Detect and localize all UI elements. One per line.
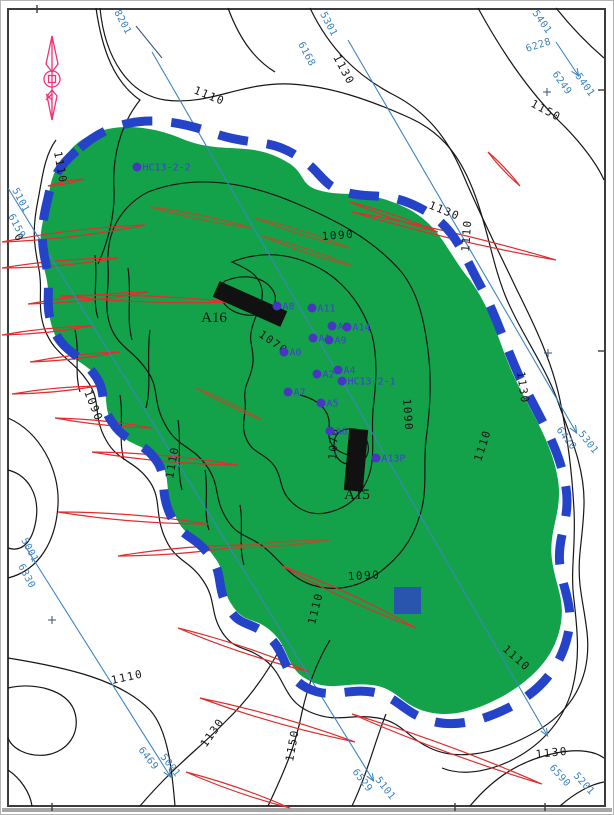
well-dot-A14 <box>343 323 352 332</box>
contour-label-1090: 1090 <box>347 568 380 583</box>
contour-label-1090: 1090 <box>400 398 415 431</box>
well-dot-A1 <box>309 334 318 343</box>
well-dot-HC13-2-2 <box>133 163 142 172</box>
facility-square <box>394 587 421 614</box>
facility <box>394 587 421 614</box>
well-dot-A7 <box>284 388 293 397</box>
well-label-A2: A2 <box>323 370 335 381</box>
well-label-A6: A6 <box>336 427 348 438</box>
well-label-HC13-2-2: HC13-2-2 <box>143 163 191 174</box>
well-dot-A0 <box>280 348 289 357</box>
well-dot-A11 <box>308 304 317 313</box>
well-dot-HC13-2-1 <box>338 377 347 386</box>
well-label-A7: A7 <box>294 388 306 399</box>
well-dot-A13P <box>372 454 381 463</box>
well-label-A5: A5 <box>327 399 339 410</box>
contour-label-1090: 1090 <box>321 228 354 243</box>
well-dot-A9 <box>325 336 334 345</box>
map-canvas: 1110113011501110010901130111011301110109… <box>0 0 614 815</box>
well-label-A4: A4 <box>344 366 356 377</box>
well-label-A13P: A13P <box>382 454 406 465</box>
platform-label-A15: A15 <box>344 487 370 503</box>
well-dot-A5 <box>317 399 326 408</box>
field-map-svg: 1110113011501110010901130111011301110109… <box>0 0 614 815</box>
well-label-A9: A9 <box>335 336 347 347</box>
well-dot-A8 <box>273 302 282 311</box>
well-label-HC13-2-1: HC13-2-1 <box>348 377 396 388</box>
well-label-A14: A14 <box>353 323 371 334</box>
well-dot-A6 <box>326 427 335 436</box>
well-label-A8: A8 <box>283 302 295 313</box>
well-dot-A3 <box>328 322 337 331</box>
contour-label-1110: 1110 <box>459 219 474 252</box>
platform-label-A16: A16 <box>201 310 227 326</box>
well-label-A11: A11 <box>318 304 336 315</box>
well-dot-A2 <box>313 370 322 379</box>
well-dot-A4 <box>334 366 343 375</box>
well-label-A0: A0 <box>290 348 302 359</box>
